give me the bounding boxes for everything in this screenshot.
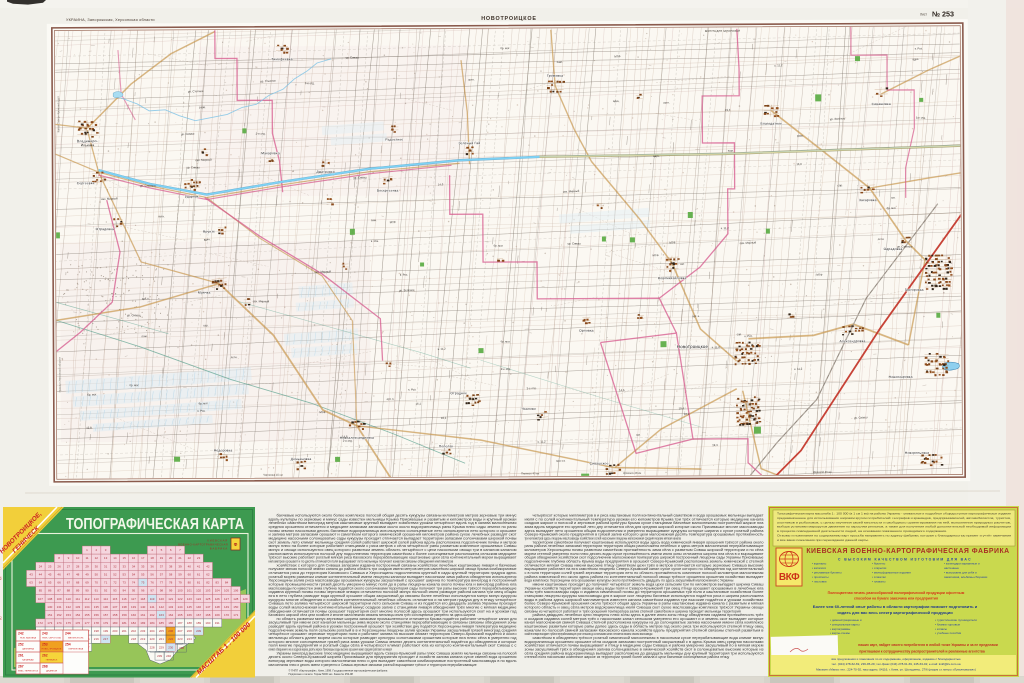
svg-text:• картограммы: • картограммы xyxy=(830,627,850,631)
svg-text:летн.: летн. xyxy=(663,100,670,104)
svg-text:МЕЛИТОПОЛЬ: МЕЛИТОПОЛЬ xyxy=(68,638,84,640)
svg-text:163: 163 xyxy=(159,613,164,617)
svg-text:117: 117 xyxy=(131,597,136,601)
svg-text:202: 202 xyxy=(131,629,136,633)
svg-text:14,6: 14,6 xyxy=(619,388,625,392)
svg-text:99: 99 xyxy=(169,589,173,593)
svg-text:ВОРОТА ДЛЯ ЗАПОРОЖЬЯ: ВОРОТА ДЛЯ ЗАПОРОЖЬЯ xyxy=(705,29,740,33)
svg-text:36: 36 xyxy=(150,564,154,568)
svg-text:112: 112 xyxy=(85,597,90,601)
svg-text:82: 82 xyxy=(206,581,210,585)
svg-text:Благодатное: Благодатное xyxy=(760,122,782,126)
svg-text:вдкч.: вдкч. xyxy=(912,57,919,61)
svg-text:144: 144 xyxy=(177,605,182,609)
svg-text:летн.: летн. xyxy=(158,214,165,218)
svg-text:• туристические путеводители: • туристические путеводители xyxy=(935,618,977,622)
svg-text:261: 261 xyxy=(18,654,24,658)
svg-text:47: 47 xyxy=(67,572,71,576)
svg-text:14,6: 14,6 xyxy=(796,162,802,166)
svg-text:ВОЕННО-КАРТОГРАФИЧЕСКАЯ: ВОЕННО-КАРТОГРАФИЧЕСКАЯ xyxy=(178,543,228,547)
svg-text:130: 130 xyxy=(47,605,52,609)
svg-text:Новорепьевка: Новорепьевка xyxy=(905,451,929,455)
svg-text:бр. мог.: бр. мог. xyxy=(886,206,896,210)
svg-text:39: 39 xyxy=(178,564,182,568)
svg-text:136: 136 xyxy=(103,605,108,609)
svg-text:3-е отд.: 3-е отд. xyxy=(305,81,315,85)
svg-text:67: 67 xyxy=(67,581,71,585)
svg-text:125: 125 xyxy=(205,597,210,601)
svg-text:175: 175 xyxy=(66,621,71,625)
svg-text:148: 148 xyxy=(215,605,220,609)
svg-text:12,8: 12,8 xyxy=(86,426,92,430)
svg-text:• проспекты: • проспекты xyxy=(812,575,829,579)
svg-text:216: 216 xyxy=(94,637,99,641)
svg-text:ур. Сиваш: ур. Сиваш xyxy=(127,313,141,317)
svg-text:Макаровка: Макаровка xyxy=(261,151,280,155)
svg-text:109: 109 xyxy=(57,597,62,601)
svg-text:Граница Херсонской области: Граница Херсонской области xyxy=(58,357,62,393)
svg-text:244: 244 xyxy=(65,632,71,636)
svg-text:• учебные пособия: • учебные пособия xyxy=(935,631,962,635)
svg-text:159: 159 xyxy=(122,613,127,617)
svg-text:83: 83 xyxy=(216,581,220,585)
svg-text:238: 238 xyxy=(179,646,184,650)
svg-text:191: 191 xyxy=(215,621,220,625)
svg-text:44: 44 xyxy=(39,572,43,576)
svg-text:126: 126 xyxy=(215,597,220,601)
svg-text:50: 50 xyxy=(95,572,99,576)
svg-text:• атласы: • атласы xyxy=(935,627,947,631)
svg-text:70: 70 xyxy=(95,581,99,585)
svg-text:Дмитровка: Дмитровка xyxy=(316,170,334,174)
svg-text:Перекоп 40 км: Перекоп 40 км xyxy=(521,471,539,475)
svg-text:59: 59 xyxy=(178,572,182,576)
svg-text:72: 72 xyxy=(113,581,117,585)
svg-text:КИЕВСКАЯ ВОЕННО-КАРТОГРАФИЧЕС: КИЕВСКАЯ ВОЕННО-КАРТОГРАФИЧЕСКАЯ ФАБРИКА xyxy=(806,548,1009,555)
svg-text:НОВ. КАХОВКА: НОВ. КАХОВКА xyxy=(20,637,37,640)
svg-text:177: 177 xyxy=(84,621,89,625)
svg-text:Григоровка: Григоровка xyxy=(905,288,924,292)
svg-text:169: 169 xyxy=(215,613,220,617)
svg-text:• календари карманные и: • календари карманные и xyxy=(944,562,980,566)
svg-text:17: 17 xyxy=(141,556,145,560)
svg-text:172: 172 xyxy=(38,621,43,625)
svg-text:19,4: 19,4 xyxy=(725,108,731,112)
svg-text:78: 78 xyxy=(169,581,173,585)
svg-text:настенные: настенные xyxy=(944,566,959,570)
svg-text:к. 11,2: к. 11,2 xyxy=(774,63,783,67)
svg-text:Полноцветная печать разнообр: Полноцветная печать разнообразной полигр… xyxy=(828,591,965,595)
svg-text:11: 11 xyxy=(85,556,88,560)
svg-text:230: 230 xyxy=(168,645,173,649)
svg-text:НОВО- ТРОИЦКОЕ: НОВО- ТРОИЦКОЕ xyxy=(42,649,62,651)
svg-text:65: 65 xyxy=(48,581,52,585)
svg-text:Тимофеевка: Тимофеевка xyxy=(271,57,292,61)
svg-text:102: 102 xyxy=(196,589,201,593)
svg-text:Ударник: Ударник xyxy=(185,195,199,199)
svg-text:ур. Степное: ур. Степное xyxy=(140,184,156,188)
svg-text:89: 89 xyxy=(76,589,80,593)
svg-text:121: 121 xyxy=(168,597,173,601)
svg-text:НОВОТРОИЦКОЕ: НОВОТРОИЦКОЕ xyxy=(481,16,537,22)
svg-text:199: 199 xyxy=(103,629,108,633)
svg-text:46: 46 xyxy=(57,572,61,576)
svg-text:Отзывы и пожелания по содержан: Отзывы и пожелания по содержанию карт пр… xyxy=(777,534,1012,538)
svg-text:66: 66 xyxy=(57,581,61,585)
svg-text:77: 77 xyxy=(160,581,164,585)
svg-text:22: 22 xyxy=(188,556,192,560)
svg-text:все предложения и пожелания: все предложения и пожелания по их содерж… xyxy=(831,657,961,661)
svg-text:96: 96 xyxy=(141,589,145,593)
svg-text:137: 137 xyxy=(112,605,117,609)
svg-text:181: 181 xyxy=(122,621,127,625)
svg-text:2-е отд.: 2-е отд. xyxy=(256,132,266,136)
svg-text:61: 61 xyxy=(197,572,201,576)
svg-text:139: 139 xyxy=(131,605,136,609)
svg-text:Новопокровка: Новопокровка xyxy=(889,375,913,379)
svg-text:184: 184 xyxy=(150,621,155,625)
svg-text:сар.: сар. xyxy=(837,183,843,187)
svg-text:Чаплинка 15 км: Чаплинка 15 км xyxy=(263,473,283,477)
svg-text:110: 110 xyxy=(66,597,71,601)
svg-text:ФАБРИКА: ФАБРИКА xyxy=(210,547,228,551)
svg-text:31: 31 xyxy=(104,564,108,568)
svg-text:Чкалово: Чкалово xyxy=(522,407,536,411)
svg-text:ур. Сиваш: ур. Сиваш xyxy=(567,241,581,245)
svg-text:Захаровка: Захаровка xyxy=(859,198,877,202)
svg-text:220: 220 xyxy=(150,637,155,641)
svg-text:23: 23 xyxy=(197,556,201,560)
svg-text:32: 32 xyxy=(113,564,117,568)
svg-text:205: 205 xyxy=(159,629,164,633)
svg-text:ур. Зелёное: ур. Зелёное xyxy=(399,288,415,293)
svg-text:267: 267 xyxy=(18,665,24,669)
svg-text:бр. мог.: бр. мог. xyxy=(501,339,511,343)
svg-text:43: 43 xyxy=(29,572,33,576)
svg-text:103: 103 xyxy=(205,589,210,593)
svg-text:90: 90 xyxy=(85,589,89,593)
svg-text:45: 45 xyxy=(48,572,52,576)
svg-text:Ильинка: Ильинка xyxy=(81,143,95,147)
svg-text:степной поля насосными комплек: степной поля насосными комплексе жаркое … xyxy=(525,655,730,659)
svg-text:Более чем 60-летний опыт р: Более чем 60-летний опыт работы в област… xyxy=(813,604,978,609)
svg-text:85: 85 xyxy=(39,589,43,593)
svg-text:131: 131 xyxy=(57,605,62,609)
svg-text:29: 29 xyxy=(85,564,89,568)
svg-text:Зелёный Гай: Зелёный Гай xyxy=(458,141,480,145)
svg-text:134: 134 xyxy=(84,605,89,609)
svg-text:63: 63 xyxy=(29,581,33,585)
svg-text:86: 86 xyxy=(48,589,52,593)
svg-text:252: 252 xyxy=(18,643,24,647)
svg-text:15: 15 xyxy=(123,556,127,560)
svg-text:223: 223 xyxy=(177,637,182,641)
svg-text:МТФ: МТФ xyxy=(390,220,396,224)
svg-text:27: 27 xyxy=(67,564,71,568)
svg-text:12: 12 xyxy=(95,556,99,560)
svg-text:• карты-схемы: • карты-схемы xyxy=(830,631,850,635)
svg-text:183: 183 xyxy=(140,621,145,625)
svg-text:219: 219 xyxy=(140,637,145,641)
svg-text:92: 92 xyxy=(104,589,108,593)
svg-text:ур. Сиваш: ур. Сиваш xyxy=(186,165,200,169)
svg-text:53: 53 xyxy=(123,572,127,576)
svg-text:97: 97 xyxy=(150,589,154,593)
svg-text:155: 155 xyxy=(84,613,89,617)
svg-text:42: 42 xyxy=(206,564,210,568)
svg-text:ВО: ВО xyxy=(0,616,3,620)
svg-text:145: 145 xyxy=(187,605,192,609)
svg-text:37: 37 xyxy=(160,564,164,568)
svg-text:208: 208 xyxy=(187,629,192,633)
svg-text:217: 217 xyxy=(103,637,108,641)
svg-text:262: 262 xyxy=(42,654,48,658)
svg-text:188: 188 xyxy=(187,621,192,625)
svg-text:204: 204 xyxy=(150,629,155,633)
svg-text:143: 143 xyxy=(168,605,173,609)
svg-text:ЧАПЛИНКА: ЧАПЛИНКА xyxy=(22,648,34,651)
svg-text:выбора установки маршрутов дви: выбора установки маршрутов движения по з… xyxy=(777,525,1011,529)
svg-text:• выпускаем для себя и: • выпускаем для себя и xyxy=(944,571,977,575)
svg-text:разв.: разв. xyxy=(797,134,804,138)
svg-text:Джанкой 46 км: Джанкой 46 км xyxy=(813,470,831,474)
svg-text:Сергеевка: Сергеевка xyxy=(77,181,95,185)
svg-text:• каталоги: • каталоги xyxy=(812,566,826,570)
svg-text:150: 150 xyxy=(233,605,238,609)
svg-text:151: 151 xyxy=(47,613,52,617)
svg-text:к. 11,2: к. 11,2 xyxy=(794,367,803,371)
svg-text:30: 30 xyxy=(95,564,99,568)
svg-text:пам.: пам. xyxy=(557,60,563,64)
svg-text:14,6: 14,6 xyxy=(342,434,348,438)
svg-text:20: 20 xyxy=(169,556,173,560)
svg-text:156: 156 xyxy=(94,613,99,617)
svg-text:Канал Северо-Крымский идёт: Канал Северо-Крымский идёт xyxy=(56,95,60,132)
svg-text:• листовки: • листовки xyxy=(812,580,827,584)
svg-text:пам.: пам. xyxy=(142,334,148,338)
svg-text:Демьяновка: Демьяновка xyxy=(291,457,312,461)
svg-text:76: 76 xyxy=(150,581,154,585)
svg-text:к. 11,2: к. 11,2 xyxy=(743,402,751,406)
svg-text:98: 98 xyxy=(160,589,164,593)
svg-text:114: 114 xyxy=(103,597,108,601)
svg-text:Сивашовка: Сивашовка xyxy=(872,102,891,106)
svg-text:Орловка: Орловка xyxy=(579,329,594,333)
svg-text:ур. Сиваш: ур. Сиваш xyxy=(346,55,360,59)
svg-text:16: 16 xyxy=(132,556,136,560)
svg-text:ур. Степное: ур. Степное xyxy=(188,89,204,94)
svg-text:35: 35 xyxy=(141,564,145,568)
svg-text:КАЛАНЧАК: КАЛАНЧАК xyxy=(22,659,34,662)
svg-text:120: 120 xyxy=(159,597,164,601)
svg-text:62: 62 xyxy=(206,572,210,576)
svg-text:200: 200 xyxy=(112,629,117,633)
svg-text:64: 64 xyxy=(39,581,43,585)
svg-text:73: 73 xyxy=(123,581,127,585)
svg-text:пол. ст.: пол. ст. xyxy=(556,459,566,463)
svg-text:ДЖАНКОЙ: ДЖАНКОЙ xyxy=(46,670,57,673)
svg-text:253: 253 xyxy=(42,643,48,647)
svg-text:127: 127 xyxy=(224,597,229,601)
svg-text:206: 206 xyxy=(168,629,173,633)
svg-text:арт. к.: арт. к. xyxy=(387,397,395,401)
svg-text:заг.: заг. xyxy=(891,195,896,199)
svg-text:147: 147 xyxy=(205,605,210,609)
svg-text:182: 182 xyxy=(131,621,136,625)
svg-text:свх. Мирный: свх. Мирный xyxy=(195,158,212,163)
svg-text:229: 229 xyxy=(159,645,164,649)
svg-text:138: 138 xyxy=(122,605,127,609)
svg-text:107: 107 xyxy=(38,597,43,601)
svg-text:75: 75 xyxy=(141,581,145,585)
svg-text:69: 69 xyxy=(85,581,89,585)
svg-text:40: 40 xyxy=(188,564,192,568)
svg-text:заказчиков, альбомы-сборники: заказчиков, альбомы-сборники xyxy=(944,575,988,579)
svg-text:к. 11,2: к. 11,2 xyxy=(438,347,447,351)
svg-text:Радостное: Радостное xyxy=(385,138,403,142)
svg-text:Новотроицкое: Новотроицкое xyxy=(677,344,709,349)
svg-text:13: 13 xyxy=(104,556,108,560)
svg-text:Отрадное: Отрадное xyxy=(450,391,467,395)
svg-text:19,4: 19,4 xyxy=(712,443,718,447)
svg-text:48: 48 xyxy=(76,572,80,576)
svg-text:Отрадовка: Отрадовка xyxy=(96,227,114,231)
svg-text:бр. мог.: бр. мог. xyxy=(198,401,208,405)
svg-text:Александровка: Александровка xyxy=(839,339,865,343)
svg-text:113: 113 xyxy=(94,597,99,601)
svg-text:176: 176 xyxy=(75,621,80,625)
svg-text:НИЖ. СЕРОГОЗЫ: НИЖ. СЕРОГОЗЫ xyxy=(42,638,61,640)
svg-text:МТФ: МТФ xyxy=(319,410,325,414)
svg-text:111: 111 xyxy=(75,597,80,601)
svg-text:55: 55 xyxy=(141,572,145,576)
svg-text:81: 81 xyxy=(197,581,201,585)
svg-text:115: 115 xyxy=(113,597,118,601)
svg-text:185: 185 xyxy=(159,621,164,625)
svg-text:вдкч.: вдкч. xyxy=(653,154,660,158)
svg-text:• бланки торговые: • бланки торговые xyxy=(935,622,960,626)
svg-text:16,1: 16,1 xyxy=(441,416,447,420)
svg-text:153: 153 xyxy=(66,613,71,617)
svg-text:166: 166 xyxy=(187,613,192,617)
svg-text:Фёдоровка: Фёдоровка xyxy=(214,448,233,452)
svg-text:87: 87 xyxy=(57,589,61,593)
svg-text:КРАС. ПЕРЕКОПСК: КРАС. ПЕРЕКОПСК xyxy=(18,670,39,673)
svg-text:Магазин «Мапа» тел.: 224-70-92: Магазин «Мапа» тел.: 224-70-92, наш адре… xyxy=(816,668,976,672)
svg-text:2-е отд.: 2-е отд. xyxy=(343,439,353,443)
svg-text:пам.: пам. xyxy=(371,218,377,222)
svg-text:190: 190 xyxy=(205,621,210,625)
svg-text:135: 135 xyxy=(94,605,99,609)
svg-text:34: 34 xyxy=(132,564,136,568)
svg-text:бр. мог.: бр. мог. xyxy=(87,392,97,396)
svg-text:91: 91 xyxy=(95,589,99,593)
svg-text:171: 171 xyxy=(233,613,238,617)
svg-text:• мелкоформатные издания: • мелкоформатные издания xyxy=(872,571,911,575)
svg-text:сар.: сар. xyxy=(203,323,209,327)
svg-text:к. 11,2: к. 11,2 xyxy=(712,345,720,349)
svg-text:• журналы: • журналы xyxy=(812,562,826,566)
svg-text:19: 19 xyxy=(160,556,164,560)
svg-text:124: 124 xyxy=(196,597,201,601)
svg-text:162: 162 xyxy=(150,613,155,617)
svg-text:164: 164 xyxy=(168,613,173,617)
svg-text:186: 186 xyxy=(168,621,173,625)
svg-text:60: 60 xyxy=(188,572,192,576)
svg-text:174: 174 xyxy=(57,621,62,625)
svg-text:тел. (044) 278-62-69, 236-95-2: тел. (044) 278-62-69, 236-95-29; тел./фа… xyxy=(831,662,961,666)
svg-text:152: 152 xyxy=(57,613,62,617)
svg-text:сар.: сар. xyxy=(737,332,743,336)
svg-text:54: 54 xyxy=(132,572,136,576)
svg-text:19,4: 19,4 xyxy=(678,406,684,410)
svg-text:летн.: летн. xyxy=(231,355,238,359)
svg-text:254: 254 xyxy=(65,643,71,647)
svg-text:118: 118 xyxy=(140,597,145,601)
svg-text:Армянск 28 км: Армянск 28 км xyxy=(623,471,641,475)
svg-text:128: 128 xyxy=(233,597,238,601)
svg-text:58: 58 xyxy=(169,572,173,576)
svg-text:3-е отд.: 3-е отд. xyxy=(916,115,926,119)
svg-text:154: 154 xyxy=(75,613,80,617)
svg-text:221: 221 xyxy=(159,637,164,641)
svg-text:МТФ: МТФ xyxy=(816,273,822,277)
svg-text:• демонстрационные и: • демонстрационные и xyxy=(830,618,862,622)
svg-text:268: 268 xyxy=(42,665,48,669)
svg-text:• этикетки: • этикетки xyxy=(872,575,886,579)
svg-text:МТФ: МТФ xyxy=(614,54,620,58)
svg-text:168: 168 xyxy=(205,613,210,617)
svg-text:94: 94 xyxy=(123,589,127,593)
svg-text:101: 101 xyxy=(187,589,192,593)
svg-text:ВКФ: ВКФ xyxy=(779,572,800,583)
svg-text:203: 203 xyxy=(140,629,145,633)
svg-text:93: 93 xyxy=(113,589,117,593)
svg-text:141: 141 xyxy=(150,605,155,609)
svg-text:104: 104 xyxy=(215,589,220,593)
svg-text:Подписано к печати. Тираж 5000: Подписано к печати. Тираж 5000 экз. Зака… xyxy=(289,672,354,676)
svg-text:16,1: 16,1 xyxy=(415,402,421,406)
svg-text:заг.: заг. xyxy=(636,433,641,437)
svg-text:133: 133 xyxy=(75,605,80,609)
svg-text:198: 198 xyxy=(94,629,99,633)
svg-text:179: 179 xyxy=(103,621,108,625)
svg-text:вдкч.: вдкч. xyxy=(204,237,211,241)
svg-text:119: 119 xyxy=(150,597,155,601)
svg-text:и все ваши пожелания при переи: и все ваши пожелания при переиздании дан… xyxy=(777,538,869,542)
svg-text:арт. к.: арт. к. xyxy=(692,314,700,318)
svg-text:170: 170 xyxy=(224,613,229,617)
svg-text:189: 189 xyxy=(196,621,201,625)
svg-text:142: 142 xyxy=(159,605,164,609)
svg-text:28: 28 xyxy=(76,564,80,568)
svg-text:14,6: 14,6 xyxy=(438,182,444,186)
svg-text:21: 21 xyxy=(178,556,182,560)
svg-text:ур. Сиваш: ур. Сиваш xyxy=(353,175,367,179)
svg-text:Маячка: Маячка xyxy=(198,291,211,295)
svg-text:приглашаем к сотрудничеству: приглашаем к сотрудничеству распространи… xyxy=(859,650,985,654)
svg-text:ур. Зелёное: ур. Зелёное xyxy=(830,116,846,121)
svg-text:ур. Сиваш: ур. Сиваш xyxy=(181,131,195,136)
svg-text:80: 80 xyxy=(188,581,192,585)
svg-text:38: 38 xyxy=(169,564,173,568)
svg-text:129: 129 xyxy=(243,597,248,601)
svg-text:летн.: летн. xyxy=(878,237,885,241)
svg-text:наших карт, найдет своего: наших карт, найдет своего потребителя в … xyxy=(858,643,998,647)
svg-text:84: 84 xyxy=(225,581,229,585)
svg-text:167: 167 xyxy=(196,613,201,617)
svg-text:бр. мог.: бр. мог. xyxy=(500,46,510,50)
